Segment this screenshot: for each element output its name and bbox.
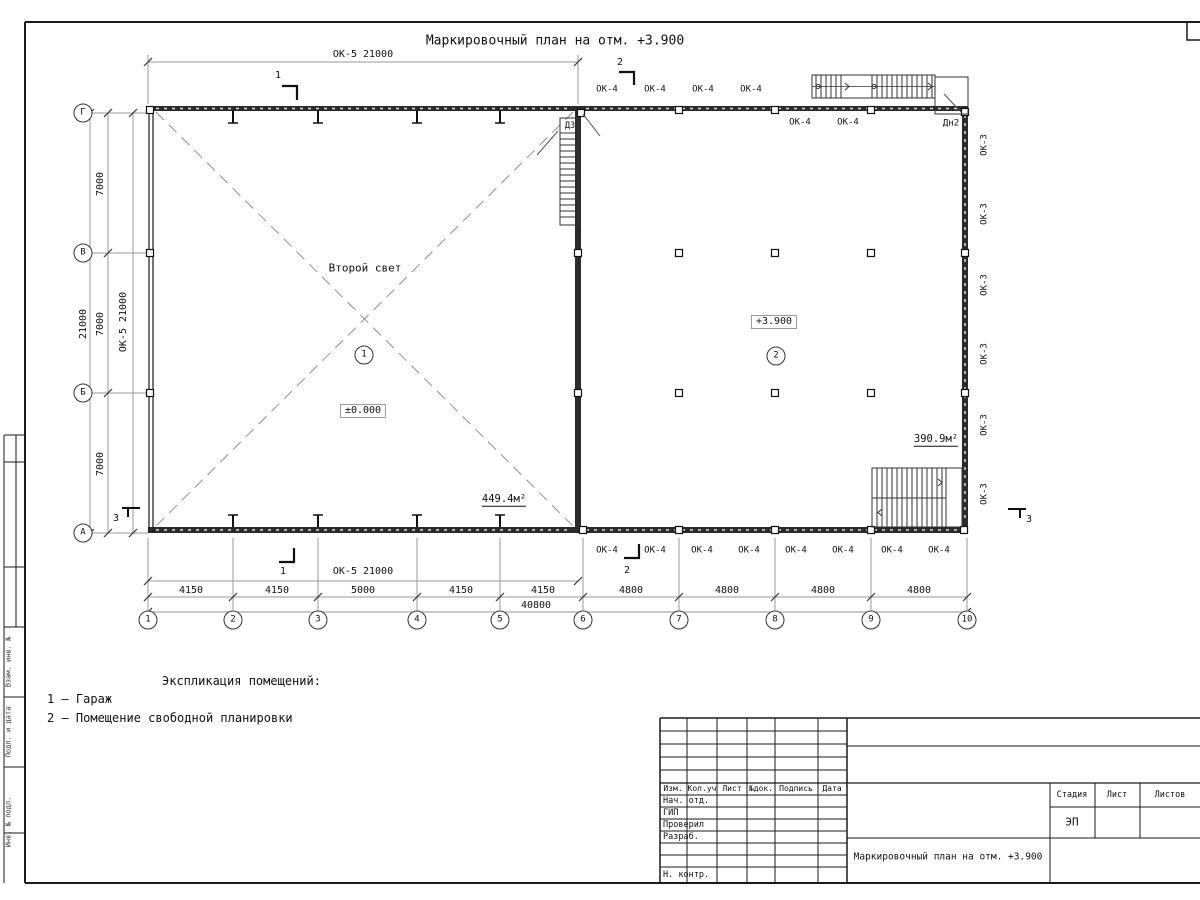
ok3-mark: ОК-3	[981, 483, 990, 505]
grid-col-bubble: 7	[670, 611, 689, 630]
tb-sheet-label: Лист	[1107, 791, 1127, 800]
section-2-top: 2	[617, 58, 623, 68]
walls	[148, 106, 968, 533]
plan-linework	[0, 0, 1200, 900]
tb-col-podpis: Подпись	[779, 785, 813, 793]
dim-seg-6: 4800	[619, 586, 643, 596]
grid-col-bubble: 10	[958, 611, 977, 630]
room1-area: 449.4м²	[482, 494, 526, 507]
grid-col-bubble: 6	[574, 611, 593, 630]
dim-top-window: ОК-5 21000	[333, 50, 393, 60]
ok3-mark: ОК-3	[981, 414, 990, 436]
dim-seg-7: 4800	[715, 586, 739, 596]
grid-col-bubble: 8	[766, 611, 785, 630]
ok4-mark: ОК-4	[837, 119, 859, 128]
tb-row-nachotd: Нач. отд.	[663, 797, 709, 806]
ok4-mark: ОК-4	[928, 547, 950, 556]
frame-label-vzam: Взам. инв. №	[6, 637, 13, 688]
dim-left-span-1: 7000	[96, 172, 106, 196]
stair-interior-bottom	[872, 468, 962, 527]
ok4-mark: ОК-4	[692, 86, 714, 95]
grid-col-bubble: 3	[309, 611, 328, 630]
door-mark-dn2: Дн2	[943, 120, 959, 129]
ok4-mark: ОК-4	[740, 86, 762, 95]
dim-left-total: 21000	[79, 309, 89, 339]
grid-col-bubble: 5	[491, 611, 510, 630]
room1-number-bubble: 1	[355, 346, 374, 365]
ok4-mark: ОК-4	[832, 547, 854, 556]
tb-row-gip: ГИП	[663, 809, 678, 818]
section-1-bottom: 1	[280, 567, 286, 577]
frame-label-inv: Инв. № подл.	[6, 797, 13, 848]
tb-doc-title: Маркировочный план на отм. +3.900	[854, 852, 1043, 862]
section-3-right: 3	[1026, 515, 1032, 525]
dim-seg-4: 4150	[449, 586, 473, 596]
door-swings	[537, 94, 961, 155]
grid-col-bubble: 2	[224, 611, 243, 630]
drawing-sheet: Маркировочный план на отм. +3.900 ОК-5 2…	[0, 0, 1200, 900]
grid-row-bubble: В	[74, 244, 93, 263]
tb-col-ndok: №док.	[749, 785, 773, 793]
dim-bottom-total: 40800	[521, 601, 551, 611]
dim-left-span-3: 7000	[96, 452, 106, 476]
tb-stage-label: Стадия	[1057, 791, 1088, 800]
dim-seg-8: 4800	[811, 586, 835, 596]
ok4-mark: ОК-4	[691, 547, 713, 556]
ok4-mark: ОК-4	[785, 547, 807, 556]
dim-seg-2: 4150	[265, 586, 289, 596]
ok3-mark: ОК-3	[981, 134, 990, 156]
ok4-mark: ОК-4	[789, 119, 811, 128]
door-mark-d3: Д3	[565, 122, 575, 131]
ok4-mark: ОК-4	[738, 547, 760, 556]
ok4-mark: ОК-4	[596, 547, 618, 556]
legend-item: 2 – Помещение свободной планировки	[47, 712, 293, 724]
sheet-frame	[25, 22, 1200, 883]
room1-level: ±0.000	[340, 404, 386, 418]
ok3-mark: ОК-3	[981, 343, 990, 365]
tb-col-list: Лист	[722, 785, 741, 793]
ok4-mark: ОК-4	[881, 547, 903, 556]
ok4-mark: ОК-4	[644, 86, 666, 95]
columns	[147, 107, 969, 534]
tb-row-proveril: Проверил	[663, 821, 704, 830]
drawing-title: Маркировочный план на отм. +3.900	[426, 35, 684, 48]
tb-col-data: Дата	[822, 785, 841, 793]
grid-row-bubble: А	[74, 524, 93, 543]
ok4-mark: ОК-4	[596, 86, 618, 95]
ok4-mark: ОК-4	[644, 547, 666, 556]
tb-sheets-label: Листов	[1155, 791, 1186, 800]
tb-row-razrab: Разраб.	[663, 833, 699, 842]
room2-level: +3.900	[751, 315, 797, 329]
section-2-bottom: 2	[624, 566, 630, 576]
dim-seg-9: 4800	[907, 586, 931, 596]
tb-col-koluch: Кол.уч	[688, 785, 717, 793]
section-1-top: 1	[275, 71, 281, 81]
room2-area: 390.9м²	[914, 434, 958, 447]
ok3-mark: ОК-3	[981, 203, 990, 225]
room1-note: Второй свет	[329, 263, 402, 274]
dim-seg-3: 5000	[351, 586, 375, 596]
tb-row-nkontr: Н. контр.	[663, 871, 709, 880]
frame-label-podp: Подп. и дата	[6, 707, 13, 758]
room2-number-bubble: 2	[767, 347, 786, 366]
dim-seg-1: 4150	[179, 586, 203, 596]
dim-left-span-2: 7000	[96, 312, 106, 336]
dim-seg-5: 4150	[531, 586, 555, 596]
dim-left-window: ОК-5 21000	[119, 292, 129, 352]
legend-heading: Экспликация помещений:	[162, 675, 321, 687]
tb-stage-value: ЭП	[1065, 817, 1078, 828]
grid-row-bubble: Б	[74, 384, 93, 403]
ok3-mark: ОК-3	[981, 274, 990, 296]
grid-row-bubble: Г	[74, 104, 93, 123]
void-cross-diagonals	[156, 112, 573, 526]
grid-col-bubble: 1	[139, 611, 158, 630]
dim-bottom-window: ОК-5 21000	[333, 567, 393, 577]
grid-col-bubble: 9	[862, 611, 881, 630]
grid-col-bubble: 4	[408, 611, 427, 630]
tb-col-izm: Изм.	[663, 785, 682, 793]
legend-item: 1 – Гараж	[47, 693, 112, 705]
section-3-left: 3	[113, 514, 119, 524]
